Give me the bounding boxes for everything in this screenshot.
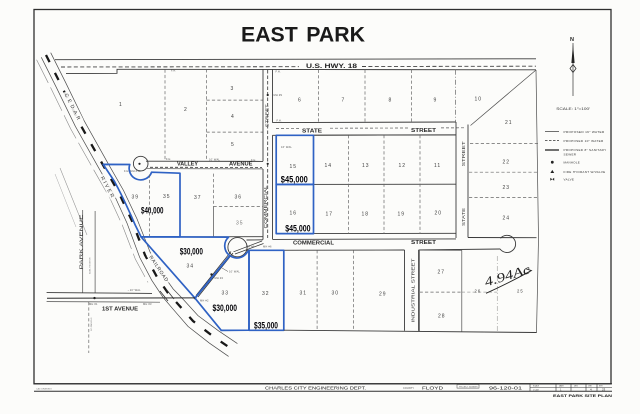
svg-text:$30,000: $30,000 [213, 303, 238, 313]
svg-text:MH #1: MH #1 [89, 302, 98, 306]
svg-text:31: 31 [300, 290, 308, 296]
svg-text:INDUSTRIAL STREET: INDUSTRIAL STREET [411, 258, 416, 322]
svg-text:FLOYD: FLOYD [422, 386, 444, 391]
svg-text:STREET: STREET [411, 128, 436, 134]
svg-text:NO PARKING: NO PARKING [90, 317, 93, 331]
svg-text:28: 28 [438, 314, 446, 320]
svg-text:1ST AVENUE: 1ST AVENUE [102, 307, 139, 313]
svg-text:$40,000: $40,000 [141, 206, 164, 216]
svg-text:12: 12 [399, 163, 407, 169]
svg-text:36: 36 [235, 195, 243, 201]
svg-text:F.H.: F.H. [276, 70, 281, 74]
svg-text:39: 39 [132, 195, 140, 201]
svg-text:PROPOSED 16″ WATER: PROPOSED 16″ WATER [564, 130, 605, 134]
svg-text:25: 25 [517, 288, 524, 293]
svg-text:MH #9: MH #9 [274, 93, 283, 97]
svg-text:MH #6: MH #6 [263, 244, 272, 248]
svg-text:MH #3: MH #3 [143, 302, 152, 306]
svg-text:U.S. HWY. 18: U.S. HWY. 18 [306, 63, 358, 70]
svg-text:VALLEY: VALLEY [177, 162, 199, 168]
svg-text:1: 1 [119, 102, 123, 108]
svg-text:N: N [570, 37, 574, 43]
svg-text:19: 19 [398, 212, 406, 218]
svg-text:PARK AVENUE: PARK AVENUE [79, 214, 84, 269]
svg-text:10: 10 [475, 97, 483, 103]
svg-text:32: 32 [262, 291, 270, 297]
svg-text:→10′ WAL: →10′ WAL [127, 288, 141, 292]
svg-text:34: 34 [187, 263, 195, 269]
svg-text:EAST PARK SITE PLAN: EAST PARK SITE PLAN [553, 394, 613, 398]
svg-text:CHARLES CITY ENGINEERING DEPT.: CHARLES CITY ENGINEERING DEPT. [265, 386, 366, 391]
svg-text:22: 22 [503, 160, 511, 166]
svg-text:21: 21 [505, 120, 513, 126]
svg-text:F.H.: F.H. [166, 157, 171, 161]
svg-text:10′ WAL: 10′ WAL [229, 270, 240, 274]
svg-text:8: 8 [389, 98, 393, 104]
svg-text:F.H.: F.H. [171, 69, 176, 73]
svg-text:35: 35 [163, 194, 171, 200]
svg-text:37: 37 [194, 195, 202, 201]
svg-text:AVENUE: AVENUE [229, 162, 253, 168]
svg-text:16′ WAL: 16′ WAL [281, 145, 292, 149]
svg-text:SCALE: 1″=100′: SCALE: 1″=100′ [556, 107, 590, 111]
svg-text:$45,000: $45,000 [285, 224, 310, 234]
svg-text:4: 4 [231, 114, 235, 120]
svg-text:MH #6: MH #6 [246, 244, 255, 248]
svg-text:AVAIL RESERVE: AVAIL RESERVE [89, 257, 92, 274]
svg-text:EAST PARK: EAST PARK [241, 24, 365, 47]
svg-text:COUNTY: COUNTY [403, 386, 414, 390]
svg-text:2: 2 [184, 107, 188, 113]
svg-text:23: 23 [602, 388, 606, 392]
svg-text:$35,000: $35,000 [254, 321, 278, 331]
svg-text:MANHOLE: MANHOLE [564, 161, 581, 165]
svg-text:STREET: STREET [264, 104, 269, 127]
svg-text:13: 13 [362, 163, 370, 169]
svg-text:7: 7 [342, 98, 346, 104]
svg-text:18: 18 [362, 212, 370, 218]
svg-text:PROPOSED 8″ SANITARY: PROPOSED 8″ SANITARY [564, 148, 607, 152]
svg-text:17: 17 [326, 212, 334, 218]
svg-text:STREET: STREET [411, 240, 436, 246]
svg-text:1″=100′: 1″=100′ [533, 390, 540, 392]
svg-text:10′ WAL: 10′ WAL [209, 157, 220, 161]
svg-text:STATE: STATE [461, 208, 466, 226]
svg-text:6: 6 [298, 98, 302, 104]
svg-text:27: 27 [438, 270, 446, 276]
svg-text:MH #2: MH #2 [200, 299, 209, 303]
svg-text:20: 20 [435, 211, 443, 217]
svg-text:24: 24 [503, 216, 511, 222]
svg-text:3: 3 [231, 86, 235, 92]
svg-text:16: 16 [290, 211, 298, 217]
svg-text:FIRE HYDRANT W/VALVE: FIRE HYDRANT W/VALVE [564, 170, 606, 174]
svg-text:26: 26 [475, 288, 482, 293]
svg-text:COMMERCIAL: COMMERCIAL [293, 241, 334, 247]
svg-text:MH #4: MH #4 [215, 276, 224, 280]
svg-text:35: 35 [236, 221, 244, 227]
svg-text:11: 11 [434, 163, 441, 169]
svg-text:14: 14 [325, 163, 333, 169]
svg-text:29: 29 [379, 291, 387, 297]
svg-text:F.H. MH #10: F.H. MH #10 [124, 169, 141, 173]
svg-text:9: 9 [434, 98, 438, 104]
svg-text:15: 15 [290, 164, 298, 170]
svg-text:STREET: STREET [461, 141, 466, 166]
svg-text:PROJECT NUMBER: PROJECT NUMBER [459, 386, 478, 388]
svg-text:96-120-01: 96-120-01 [489, 386, 523, 391]
svg-text:33: 33 [222, 290, 230, 296]
svg-text:23: 23 [503, 185, 511, 191]
svg-text:F.H.: F.H. [277, 119, 282, 123]
svg-text:F.H.: F.H. [251, 158, 256, 162]
svg-text:VALVE: VALVE [564, 178, 575, 182]
svg-text:$30,000: $30,000 [180, 246, 203, 256]
svg-text:5: 5 [231, 142, 235, 148]
svg-text:PROPOSED 10″ WATER: PROPOSED 10″ WATER [564, 139, 604, 143]
svg-text:DATE: DATE [559, 385, 564, 388]
svg-text:CAD DRAWING: CAD DRAWING [36, 388, 52, 391]
svg-text:30: 30 [332, 290, 340, 296]
svg-text:$45,000: $45,000 [281, 174, 308, 184]
svg-text:SCALE: SCALE [533, 385, 540, 388]
svg-text:COMMERCIAL: COMMERCIAL [263, 185, 268, 229]
svg-text:STATE: STATE [302, 128, 323, 134]
svg-text:SEWER: SEWER [564, 153, 577, 157]
